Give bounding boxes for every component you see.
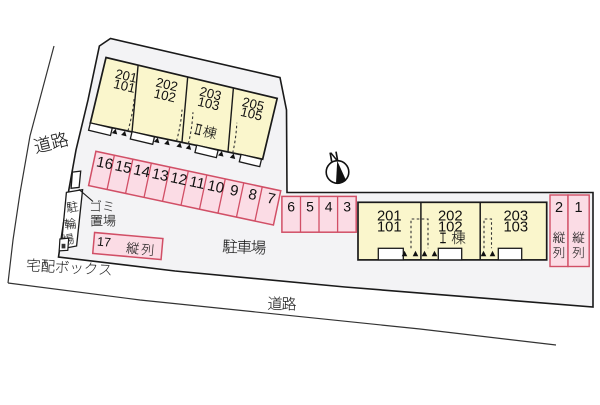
- svg-text:1: 1: [574, 200, 582, 216]
- svg-text:4: 4: [325, 198, 333, 214]
- svg-text:15: 15: [113, 157, 133, 177]
- svg-text:13: 13: [150, 165, 170, 185]
- svg-text:6: 6: [287, 198, 295, 214]
- svg-text:14: 14: [132, 161, 152, 181]
- svg-text:5: 5: [306, 198, 314, 214]
- svg-text:17: 17: [96, 235, 111, 250]
- svg-text:10: 10: [206, 177, 226, 197]
- svg-text:2: 2: [555, 200, 563, 216]
- svg-text:3: 3: [343, 198, 351, 214]
- svg-text:103: 103: [503, 219, 528, 235]
- svg-text:101: 101: [377, 219, 402, 235]
- svg-text:16: 16: [95, 153, 115, 173]
- svg-text:N: N: [328, 148, 340, 164]
- svg-text:12: 12: [169, 169, 189, 189]
